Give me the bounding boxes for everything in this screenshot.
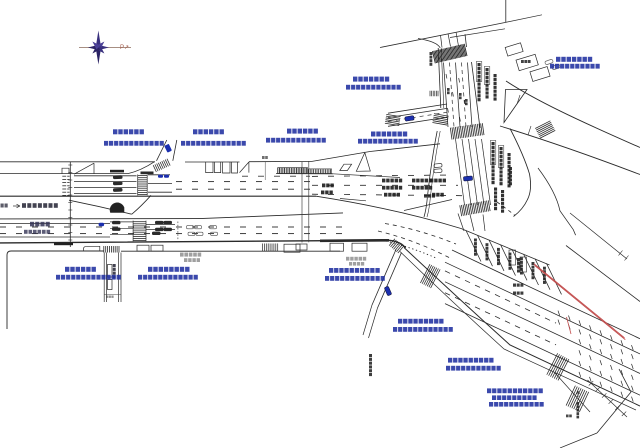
svg-text:P↗: P↗ bbox=[120, 45, 129, 51]
